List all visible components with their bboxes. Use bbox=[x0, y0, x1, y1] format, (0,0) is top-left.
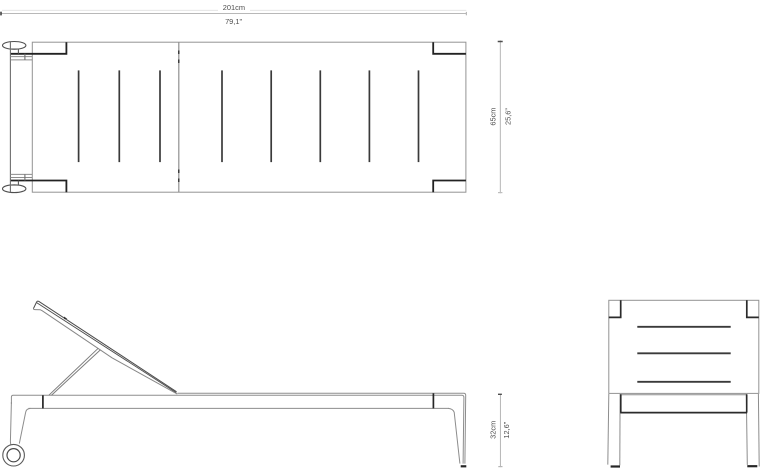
svg-text:201cm: 201cm bbox=[223, 3, 245, 12]
svg-text:25,6”: 25,6” bbox=[503, 108, 512, 125]
svg-text:65cm: 65cm bbox=[488, 108, 497, 126]
svg-text:32cm: 32cm bbox=[489, 421, 498, 439]
svg-text:12,6”: 12,6” bbox=[502, 421, 511, 438]
svg-text:79,1”: 79,1” bbox=[225, 17, 242, 26]
